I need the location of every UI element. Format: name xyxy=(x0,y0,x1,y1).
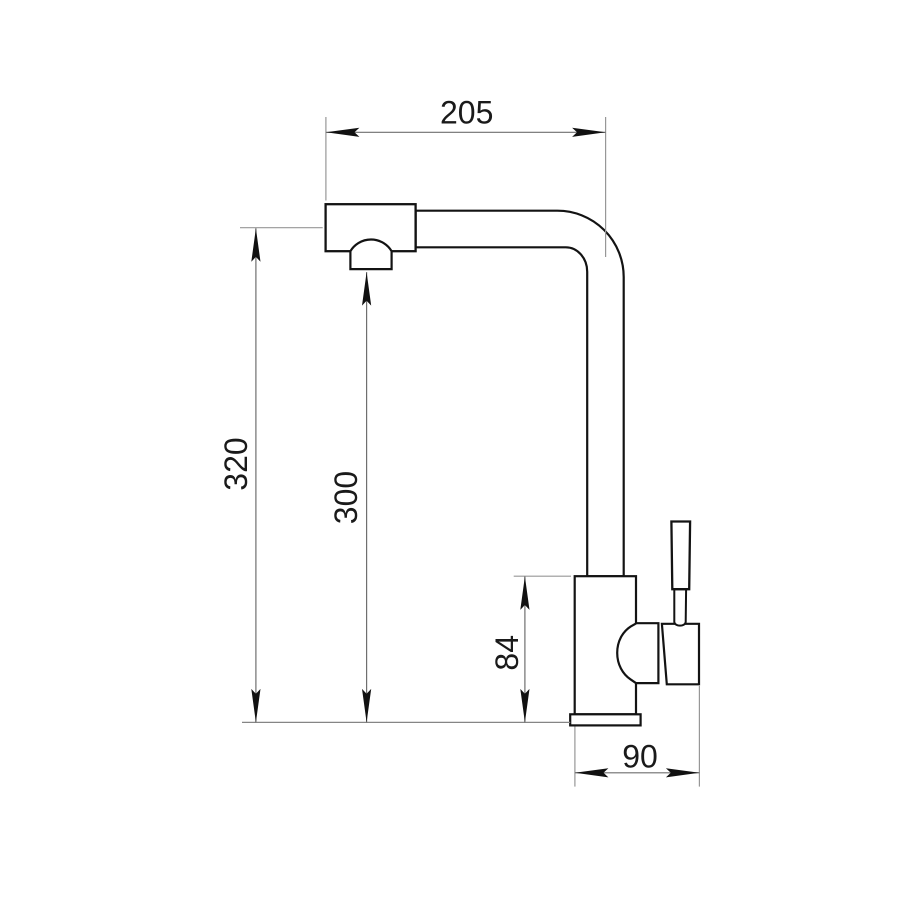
svg-text:300: 300 xyxy=(328,471,364,524)
svg-text:84: 84 xyxy=(489,635,525,671)
svg-text:205: 205 xyxy=(440,94,493,130)
svg-text:90: 90 xyxy=(622,739,658,775)
svg-text:320: 320 xyxy=(218,437,254,490)
